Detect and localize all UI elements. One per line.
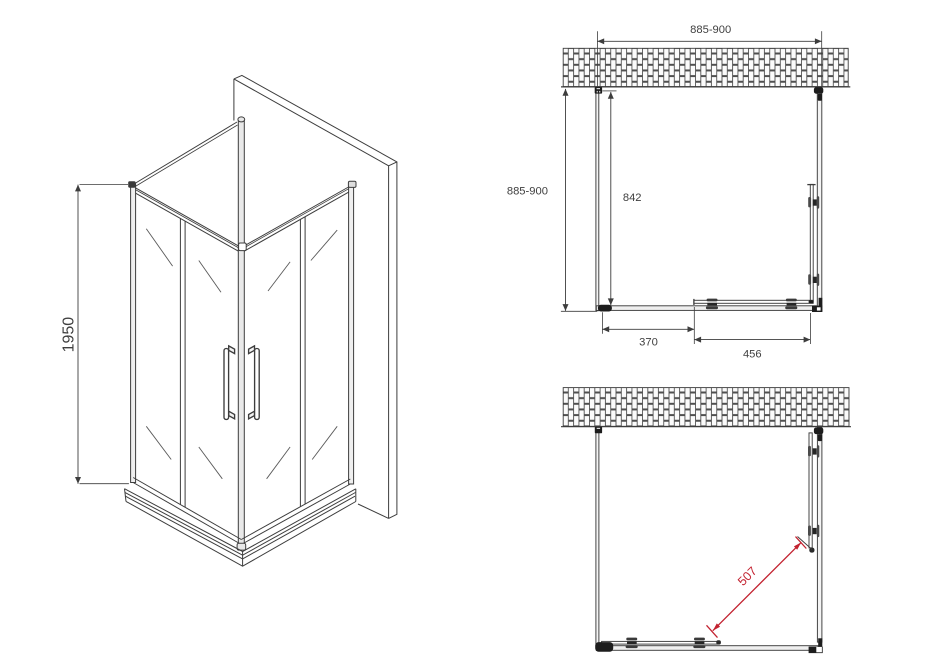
svg-text:842: 842: [623, 192, 642, 204]
svg-text:370: 370: [639, 337, 658, 349]
svg-text:885-900: 885-900: [690, 24, 731, 36]
svg-text:507: 507: [735, 564, 760, 589]
svg-text:456: 456: [743, 349, 762, 361]
svg-text:1950: 1950: [61, 317, 78, 353]
svg-text:885-900: 885-900: [507, 186, 548, 198]
